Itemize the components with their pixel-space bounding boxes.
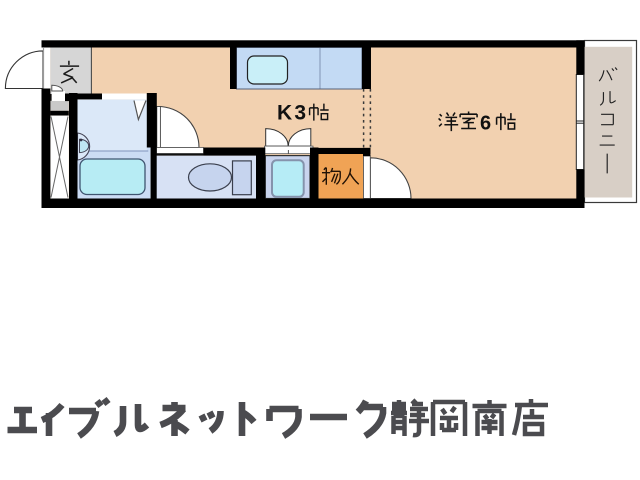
svg-text:K3: K3 — [277, 102, 306, 125]
svg-text:6: 6 — [480, 113, 491, 135]
